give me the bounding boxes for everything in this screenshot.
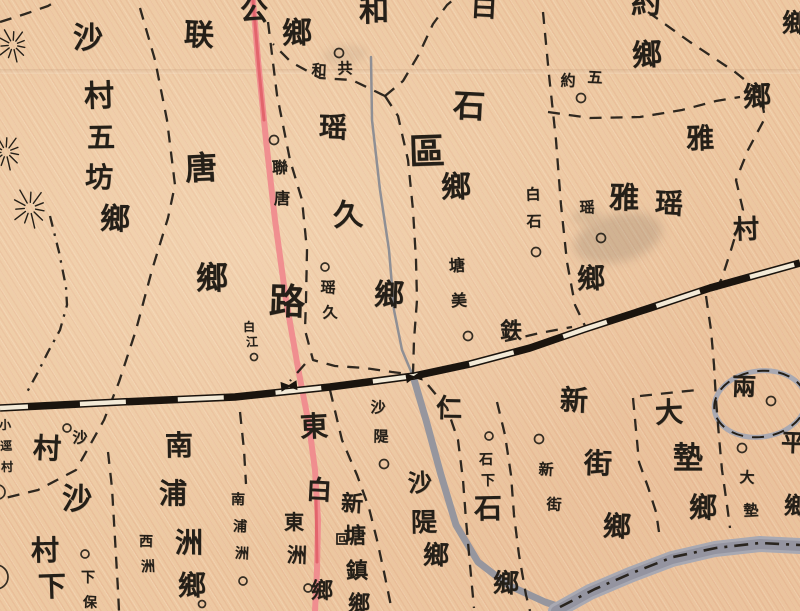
label-shi-qu-xiang: 石 — [452, 89, 486, 123]
label-bai-shi-village: 石 — [526, 214, 541, 229]
label-xin-jie-xiang: 街 — [584, 450, 613, 479]
label-sha-di-xiang: 隄 — [411, 510, 437, 536]
label-tang-mei-village: 美 — [451, 293, 468, 310]
label-xiao-jing-cun: 小 — [0, 419, 11, 431]
label-ya-yao-xiang: 雅 — [609, 184, 640, 215]
label-sha-cun-wu-fang-xiang: 村 — [83, 81, 114, 112]
label-sha-di-village: 隄 — [373, 429, 388, 444]
label-gong-he-village: 和 — [311, 63, 327, 79]
map-root: 联唐鄉沙村五坊鄉和鄉約鄉白石區鄉瑶久鄉公路雅瑶鄉鄉雅村鄉鉄仁石鄉新街鄉大墊鄉兩南… — [0, 0, 800, 611]
label-right-edge-north: 雅 — [686, 125, 715, 154]
label-he-xiang: 和 — [359, 0, 390, 27]
label-xin-tang-zhen: 鎮 — [346, 561, 368, 583]
label-sha-cun-xia: 沙 — [62, 485, 93, 516]
label-xin-jie-village: 新 — [538, 462, 554, 478]
label-sha-cun-xia: 村 — [31, 537, 60, 565]
label-yue-xiang-top: 鄉 — [631, 40, 663, 72]
label-yue-wu-village: 約 — [560, 74, 575, 89]
label-da-dian-xiang: 鄉 — [689, 494, 717, 522]
label-right-edge-north: 鄉 — [743, 83, 772, 112]
label-nan-pu-zhou-xiang: 南 — [165, 432, 194, 460]
label-right-edge-north: 鄉 — [782, 11, 800, 37]
label-da-dian-village: 大 — [739, 470, 755, 486]
label-ren-shi-xiang: 石 — [474, 495, 503, 523]
label-ren-shi-xiang: 鄉 — [493, 571, 519, 597]
label-shi-qu-xiang: 白 — [470, 0, 497, 22]
label-gong-he-village: 共 — [337, 61, 353, 77]
label-road-label-gong: 公 — [240, 0, 268, 25]
label-dong-bai: 白 — [305, 477, 332, 504]
label-xin-tang-zhen: 新 — [340, 493, 363, 516]
label-xin-tang-zhen: 鄉 — [348, 594, 370, 611]
label-sha-cun-wu-fang-xiang: 坊 — [85, 164, 114, 192]
label-xiao-jing-cun: 逕 — [0, 440, 12, 452]
label-lian-tang-xiang: 联 — [183, 20, 215, 52]
label-yao-jiu-village: 久 — [322, 305, 337, 320]
label-dong-zhou-xiang: 洲 — [287, 545, 308, 566]
label-shi-qu-xiang: 區 — [408, 134, 445, 171]
label-xiao-jing-cun: 村 — [1, 461, 13, 473]
label-nan-pu-zhou-village: 浦 — [233, 520, 247, 534]
label-ren-shi-xiang: 仁 — [436, 396, 462, 422]
label-jiu-xiang: 久 — [332, 200, 363, 231]
label-sha-cun-wu-fang-xiang: 五 — [87, 124, 116, 152]
label-jiu-xiang: 鄉 — [373, 280, 404, 311]
label-right-edge-south: 平 — [781, 431, 800, 456]
label-nan-pu-zhou-xiang: 浦 — [159, 480, 187, 508]
label-xin-tang-zhen: 塘 — [344, 526, 366, 548]
label-sha-village: 沙 — [72, 431, 87, 446]
label-bai-shi-village: 白 — [525, 187, 541, 203]
label-da-dian-village: 墊 — [743, 503, 759, 519]
label-nan-pu-zhou-xiang: 鄉 — [178, 572, 207, 600]
label-shi-xia-village: 石 — [479, 453, 493, 467]
label-yao-big: 瑶 — [319, 114, 348, 143]
label-ya-yao-xiang: 瑶 — [654, 189, 683, 218]
label-nan-pu-zhou-xiang: 洲 — [175, 529, 203, 557]
label-dong-bai: 東 — [299, 412, 328, 441]
label-sha-cun-xia: 村 — [32, 434, 61, 463]
label-tang-mei-village: 塘 — [449, 258, 466, 275]
label-dong-zhou-xiang: 東 — [284, 512, 304, 532]
label-sha-di-xiang: 鄉 — [423, 543, 449, 569]
label-xin-jie-xiang: 鄉 — [603, 513, 632, 542]
label-shi-xia-village: 下 — [481, 474, 495, 488]
label-railway-label-tie: 鉄 — [500, 321, 522, 343]
label-lian-tang-village: 唐 — [274, 191, 290, 207]
map-labels-layer: 联唐鄉沙村五坊鄉和鄉約鄉白石區鄉瑶久鄉公路雅瑶鄉鄉雅村鄉鉄仁石鄉新街鄉大墊鄉兩南… — [0, 0, 800, 611]
label-da-dian-xiang: 大 — [654, 398, 683, 427]
label-bai-jiang-village: 江 — [246, 336, 258, 348]
label-xia-bao-village: 保 — [83, 596, 98, 611]
label-xi-zhou-village: 西 — [139, 535, 153, 549]
label-dong-zhou-xiang: 鄉 — [311, 581, 333, 603]
label-yue-wu-village: 五 — [587, 70, 603, 86]
label-sha-di-xiang: 沙 — [407, 470, 432, 495]
label-xi-zhou-village: 洲 — [141, 560, 156, 575]
label-bai-jiang-village: 白 — [243, 321, 255, 333]
label-lian-tang-village: 聯 — [272, 160, 289, 177]
label-sha-cun-wu-fang-xiang: 沙 — [73, 24, 103, 54]
label-yue-xiang-top: 約 — [631, 0, 661, 19]
label-liang: 兩 — [732, 375, 757, 400]
label-xin-jie-xiang: 新 — [560, 387, 589, 416]
label-lian-tang-xiang: 鄉 — [196, 262, 229, 295]
label-lian-tang-xiang: 唐 — [184, 151, 218, 185]
label-road-label-lu: 路 — [268, 284, 305, 321]
label-he-xiang: 鄉 — [281, 18, 312, 49]
label-nan-pu-zhou-village: 洲 — [235, 547, 250, 562]
label-sha-di-village: 沙 — [370, 400, 386, 416]
label-sha-cun-wu-fang-xiang: 鄉 — [100, 205, 131, 236]
label-shi-qu-xiang: 鄉 — [440, 172, 471, 203]
label-ya-yao-xiang: 鄉 — [577, 265, 606, 294]
label-sha-cun-xia: 下 — [38, 573, 67, 602]
label-yao-village: 瑶 — [579, 200, 594, 215]
label-da-dian-xiang: 墊 — [673, 444, 703, 474]
label-nan-pu-zhou-village: 南 — [231, 493, 245, 507]
label-yao-jiu-village: 瑶 — [320, 280, 336, 296]
label-xia-bao-village: 下 — [81, 571, 95, 585]
label-right-edge-north: 村 — [733, 217, 760, 244]
label-xin-jie-village: 街 — [546, 497, 562, 513]
label-right-edge-south: 鄉 — [784, 494, 800, 519]
